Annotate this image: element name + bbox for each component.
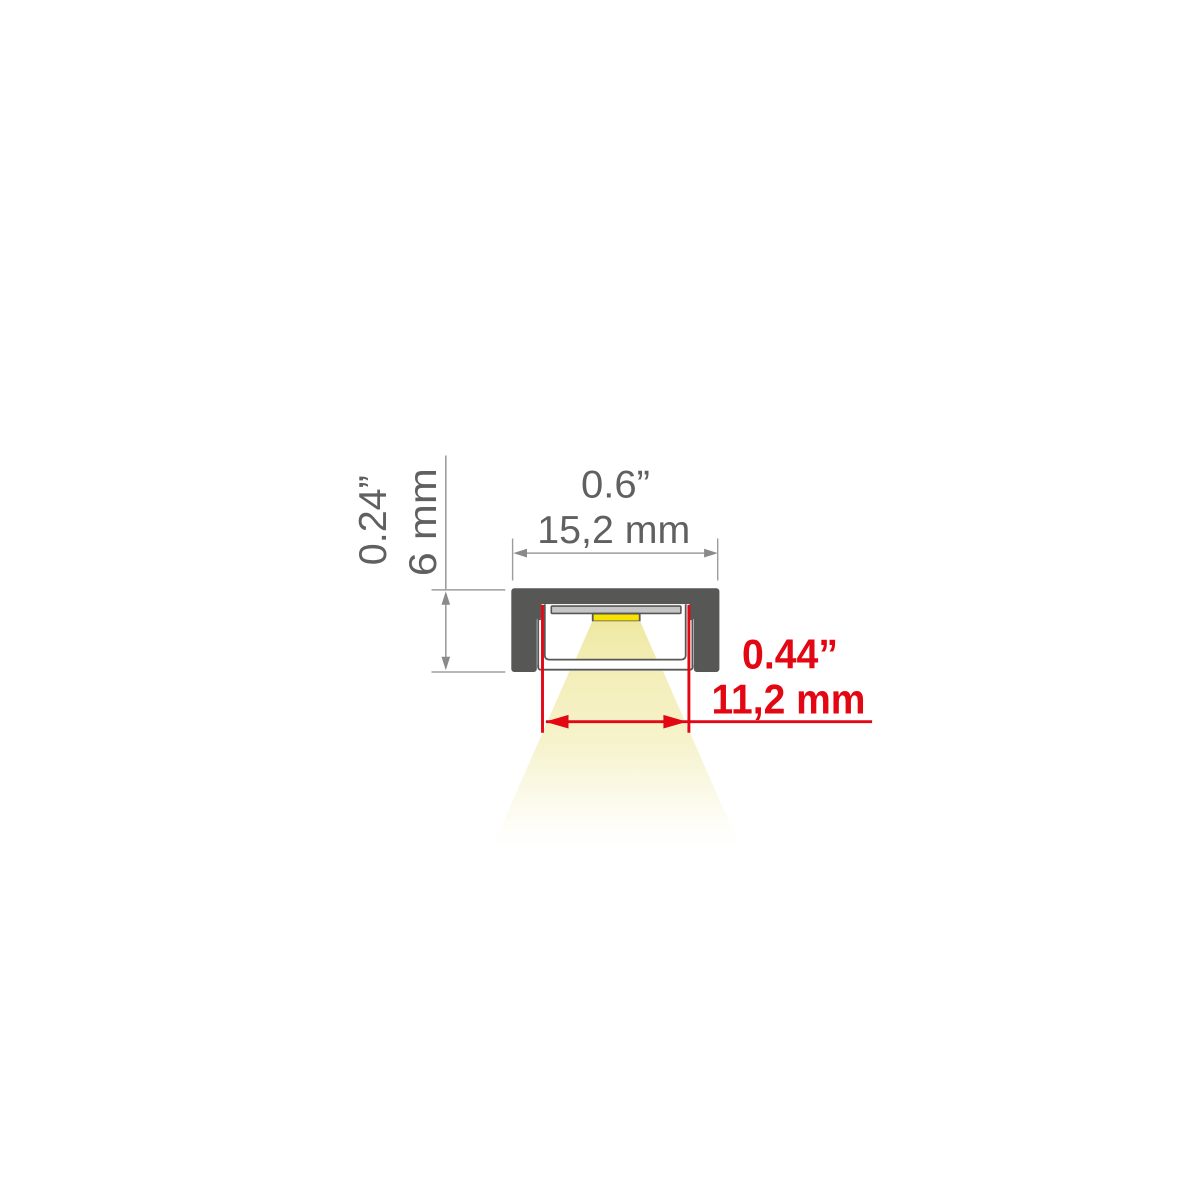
svg-text:0.24”: 0.24” (352, 475, 395, 565)
svg-text:6 mm: 6 mm (402, 468, 445, 576)
svg-text:11,2 mm: 11,2 mm (712, 675, 866, 722)
svg-text:15,2 mm: 15,2 mm (537, 509, 690, 552)
svg-text:0.44”: 0.44” (742, 630, 838, 677)
svg-text:0.6”: 0.6” (581, 464, 650, 507)
